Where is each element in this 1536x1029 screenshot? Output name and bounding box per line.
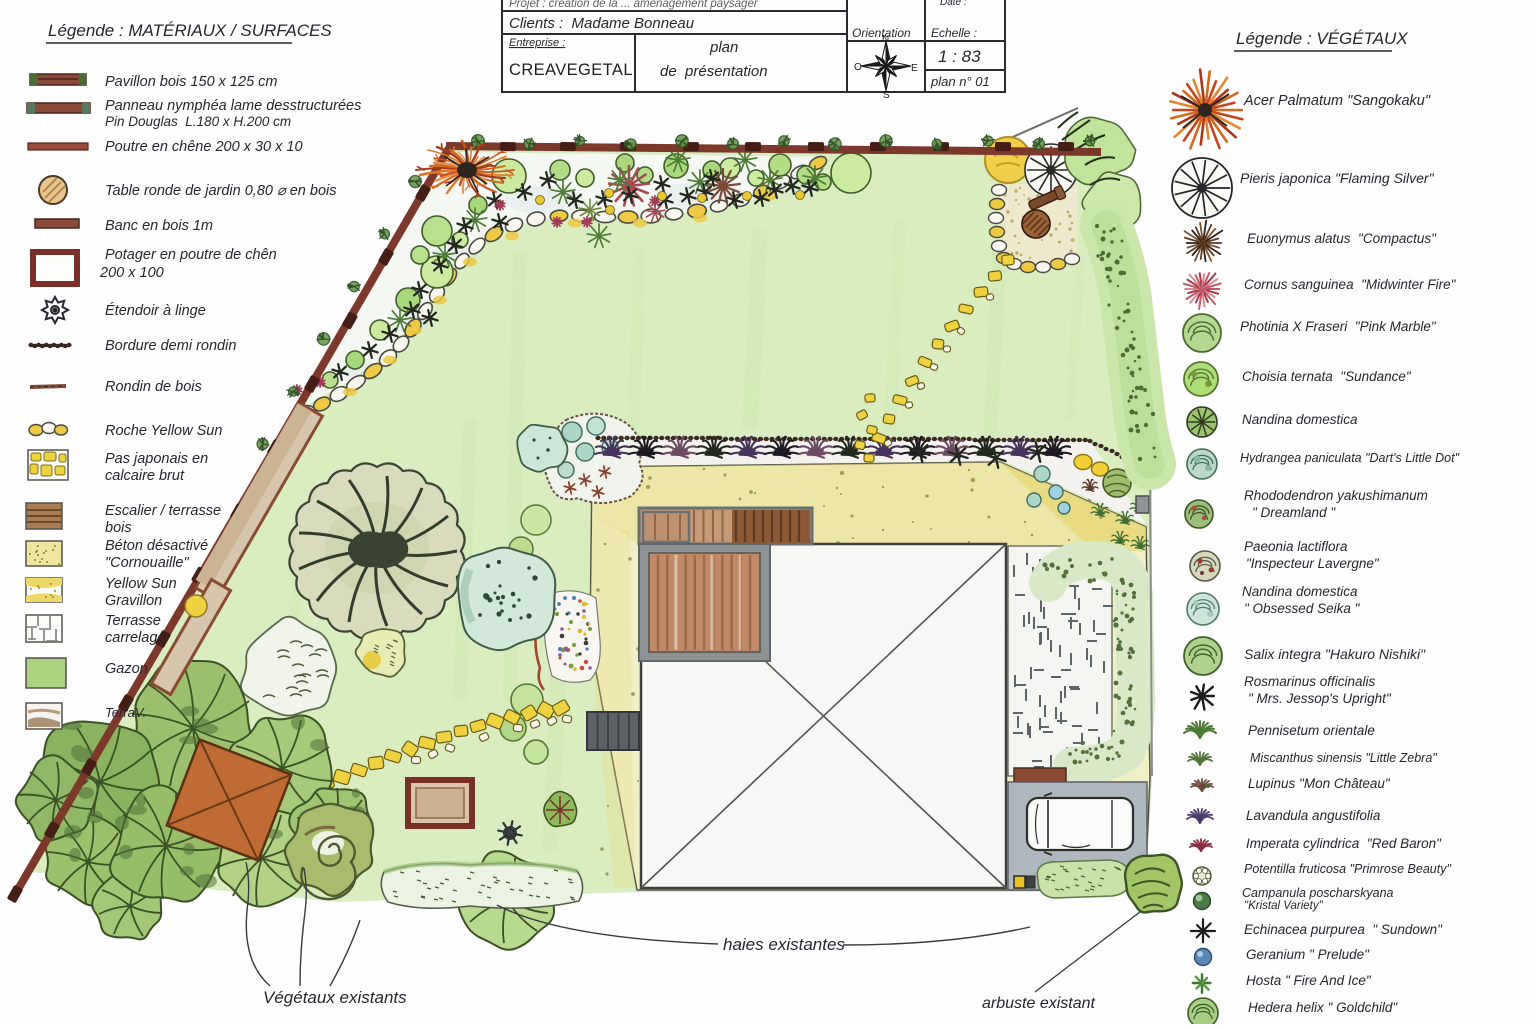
- svg-text:Rhododendron yakushimanum: Rhododendron yakushimanum: [1244, 488, 1428, 503]
- svg-text:"Inspecteur Lavergne": "Inspecteur Lavergne": [1246, 556, 1380, 571]
- svg-text:Hydrangea paniculata "Dart's L: Hydrangea paniculata "Dart's Little Dot": [1240, 451, 1460, 465]
- svg-text:Table ronde de jardin 0,80 ⌀ e: Table ronde de jardin 0,80 ⌀ en bois: [105, 183, 337, 199]
- svg-text:1 : 83: 1 : 83: [938, 47, 981, 66]
- svg-text:Entreprise :: Entreprise :: [509, 37, 565, 49]
- svg-text:200 x 100: 200 x 100: [99, 265, 164, 281]
- svg-text:" Mrs. Jessop's Upright": " Mrs. Jessop's Upright": [1248, 691, 1392, 706]
- svg-text:arbuste existant: arbuste existant: [982, 995, 1096, 1012]
- svg-text:Rosmarinus officinalis: Rosmarinus officinalis: [1244, 674, 1376, 689]
- svg-text:Imperata cylindrica "Red Baro: Imperata cylindrica "Red Baron": [1246, 836, 1442, 851]
- svg-text:Végétaux existants: Végétaux existants: [263, 988, 407, 1007]
- svg-text:Hosta " Fire And Ice": Hosta " Fire And Ice": [1246, 973, 1372, 988]
- svg-text:de présentation: de présentation: [660, 63, 768, 80]
- svg-text:Légende : MATÉRIAUX / SURFACES: Légende : MATÉRIAUX / SURFACES: [48, 21, 332, 40]
- svg-text:S: S: [883, 90, 890, 101]
- svg-text:Projet : création de la ... am: Projet : création de la ... aménagement …: [509, 0, 759, 10]
- svg-text:Campanula poscharskyana: Campanula poscharskyana: [1242, 886, 1394, 900]
- svg-text:O: O: [854, 62, 862, 73]
- svg-text:Roche Yellow Sun: Roche Yellow Sun: [105, 423, 222, 439]
- svg-text:Cornus sanguinea "Midwinter F: Cornus sanguinea "Midwinter Fire": [1244, 277, 1457, 292]
- svg-text:Nandina domestica: Nandina domestica: [1242, 412, 1358, 427]
- svg-text:Potager en poutre de chên: Potager en poutre de chên: [105, 247, 277, 263]
- svg-text:Lupinus "Mon Château": Lupinus "Mon Château": [1248, 776, 1391, 791]
- svg-text:plan: plan: [709, 39, 738, 56]
- svg-text:Pin Douglas L.180 x H.200 cm: Pin Douglas L.180 x H.200 cm: [105, 114, 291, 129]
- svg-text:calcaire brut: calcaire brut: [105, 468, 185, 484]
- svg-text:Légende : VÉGÉTAUX: Légende : VÉGÉTAUX: [1236, 29, 1408, 48]
- svg-text:Bordure demi rondin: Bordure demi rondin: [105, 338, 236, 354]
- svg-text:Choisia ternata "Sundance": Choisia ternata "Sundance": [1242, 369, 1412, 384]
- svg-text:Echelle :: Echelle :: [931, 26, 977, 40]
- svg-text:Terrasse: Terrasse: [105, 613, 161, 629]
- svg-text:"Kristal Variety": "Kristal Variety": [1244, 900, 1324, 912]
- svg-text:Miscanthus sinensis "Little Ze: Miscanthus sinensis "Little Zebra": [1250, 751, 1437, 765]
- svg-text:Yellow Sun: Yellow Sun: [105, 576, 177, 592]
- svg-text:Panneau nymphéa lame desstruct: Panneau nymphéa lame desstructurées: [105, 98, 361, 114]
- svg-text:Pas japonais en: Pas japonais en: [105, 451, 208, 467]
- svg-text:Lavandula angustifolia: Lavandula angustifolia: [1246, 808, 1381, 823]
- svg-text:Béton désactivé: Béton désactivé: [105, 538, 208, 554]
- svg-text:"Cornouaille": "Cornouaille": [105, 555, 189, 571]
- svg-text:Gravillon: Gravillon: [105, 593, 162, 609]
- svg-text:haies existantes: haies existantes: [723, 935, 845, 954]
- svg-text:Banc en bois 1m: Banc en bois 1m: [105, 218, 213, 234]
- svg-text:bois: bois: [105, 520, 132, 536]
- svg-text:Potentilla fruticosa "Primrose: Potentilla fruticosa "Primrose Beauty": [1244, 862, 1451, 876]
- svg-text:E: E: [911, 63, 918, 74]
- svg-text:Pieris japonica "Flaming Silve: Pieris japonica "Flaming Silver": [1240, 170, 1435, 186]
- svg-text:Étendoir à linge: Étendoir à linge: [105, 302, 206, 319]
- svg-text:carrelage: carrelage: [105, 630, 165, 646]
- svg-text:Pennisetum orientale: Pennisetum orientale: [1248, 723, 1375, 738]
- svg-text:Rondin de bois: Rondin de bois: [105, 379, 202, 395]
- svg-text:Geranium " Prelude": Geranium " Prelude": [1246, 947, 1370, 962]
- svg-text:Poutre en chêne 200 x 30 x 10: Poutre en chêne 200 x 30 x 10: [105, 139, 303, 155]
- svg-text:Date :: Date :: [940, 0, 967, 8]
- svg-text:Nandina domestica: Nandina domestica: [1242, 584, 1358, 599]
- svg-text:CREAVEGETAL: CREAVEGETAL: [509, 61, 633, 79]
- svg-text:" Obsessed Seika ": " Obsessed Seika ": [1244, 601, 1361, 616]
- svg-text:Euonymus alatus "Compactus": Euonymus alatus "Compactus": [1247, 231, 1437, 246]
- svg-text:N: N: [882, 34, 889, 45]
- svg-text:Escalier / terrasse: Escalier / terrasse: [105, 503, 221, 519]
- svg-text:Photinia X Fraseri "Pink Marb: Photinia X Fraseri "Pink Marble": [1240, 319, 1437, 334]
- svg-text:Pavillon bois 150 x 125 cm: Pavillon bois 150 x 125 cm: [105, 74, 278, 90]
- svg-text:Gazon: Gazon: [105, 661, 148, 677]
- svg-text:Salix integra "Hakuro Nishiki": Salix integra "Hakuro Nishiki": [1244, 646, 1426, 662]
- svg-text:Paeonia lactiflora: Paeonia lactiflora: [1244, 539, 1348, 554]
- svg-text:Clients : Madame Bonneau: Clients : Madame Bonneau: [509, 15, 695, 32]
- svg-text:Acer Palmatum "Sangokaku": Acer Palmatum "Sangokaku": [1243, 93, 1431, 109]
- svg-text:" Dreamland ": " Dreamland ": [1252, 505, 1336, 520]
- svg-text:plan n° 01: plan n° 01: [930, 74, 990, 89]
- svg-text:Hedera helix " Goldchild": Hedera helix " Goldchild": [1248, 1000, 1398, 1015]
- svg-text:TerraV.: TerraV.: [105, 705, 146, 720]
- svg-text:Echinacea purpurea " Sundown": Echinacea purpurea " Sundown": [1244, 922, 1443, 937]
